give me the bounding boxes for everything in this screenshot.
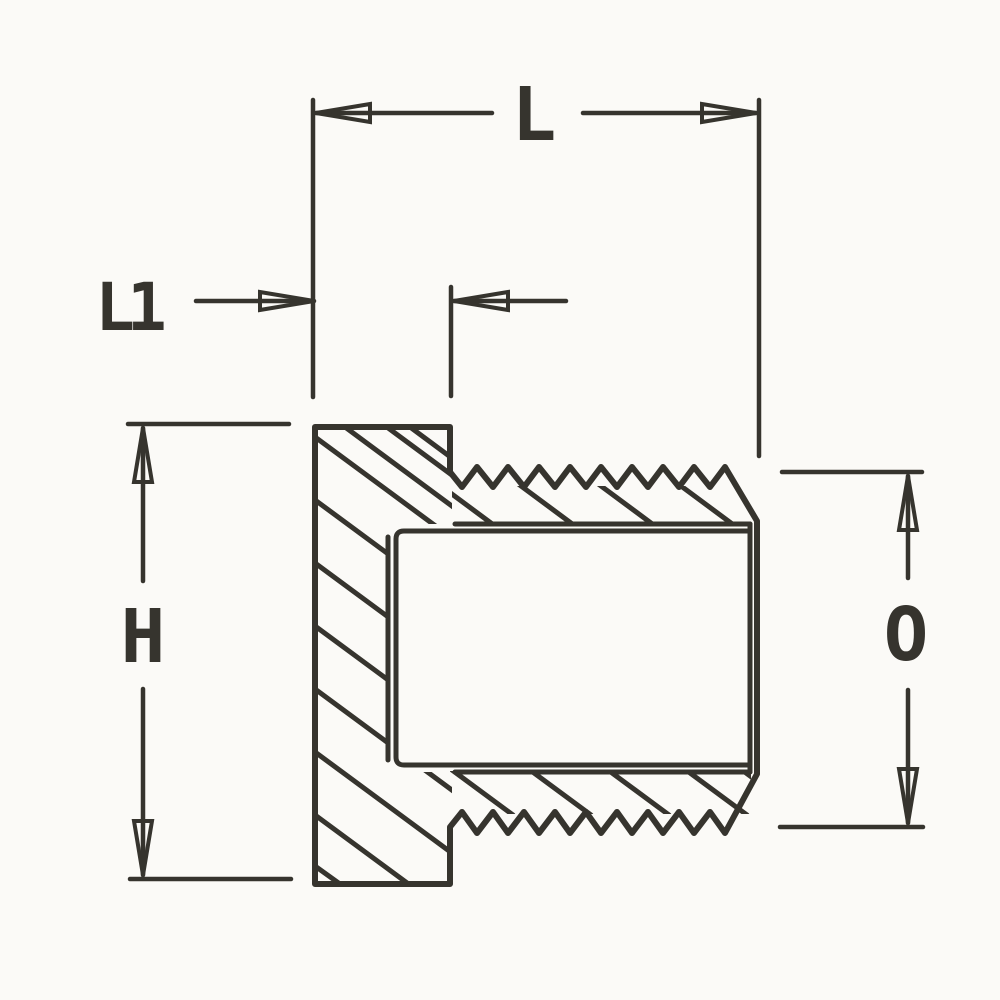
drawing-canvas: L L1 H O	[0, 0, 1000, 1000]
technical-drawing: L L1 H O	[0, 0, 1000, 1000]
label-head-height: H	[121, 594, 166, 680]
paper-background	[0, 0, 1000, 1000]
label-head-length: L1	[95, 269, 164, 346]
label-thread-od: O	[884, 592, 929, 678]
label-overall-length: L	[512, 72, 557, 158]
